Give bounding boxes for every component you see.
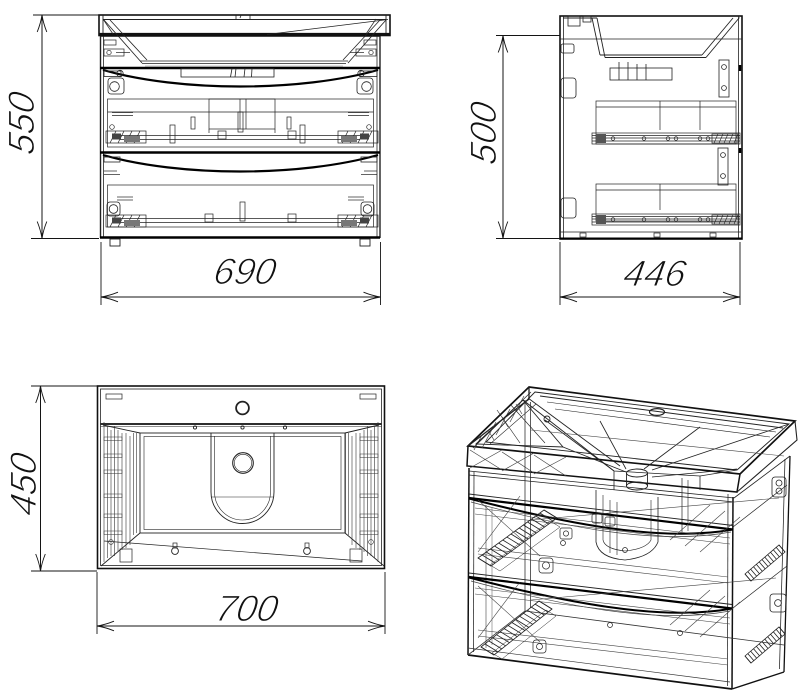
svg-text:446: 446 xyxy=(621,253,690,294)
svg-text:700: 700 xyxy=(213,588,282,629)
svg-text:690: 690 xyxy=(211,251,280,292)
svg-text:500: 500 xyxy=(463,98,504,167)
svg-text:550: 550 xyxy=(1,88,42,157)
svg-text:450: 450 xyxy=(3,449,44,518)
